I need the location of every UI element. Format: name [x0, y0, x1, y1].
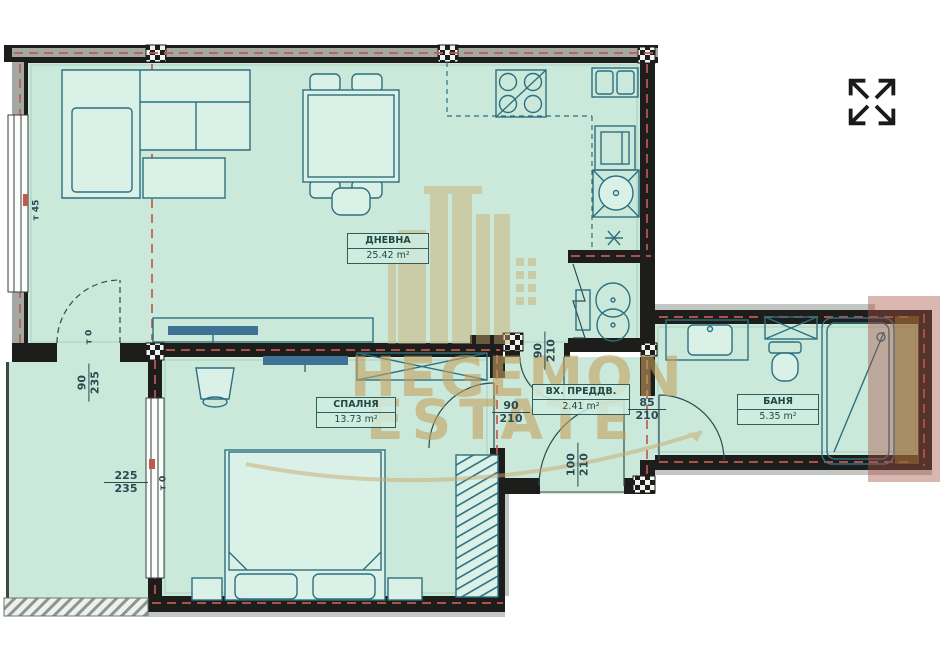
dim-living-hall-door: 90 210 — [532, 332, 557, 370]
dim-terrace-door: 90 235 — [76, 364, 101, 402]
nightstand — [192, 578, 222, 600]
party-wall-strip — [895, 316, 919, 464]
pillow — [313, 574, 375, 599]
room-area: 2.41 m² — [533, 400, 629, 414]
room-label-hall: ВХ. ПРЕДДВ. 2.41 m² — [532, 384, 630, 415]
coffee-table — [143, 158, 225, 198]
height-label-terrace-door: т 0 — [84, 330, 94, 345]
pillow — [235, 574, 297, 599]
nightstand — [388, 578, 422, 600]
dim-balcony-slider: 225 235 — [104, 470, 148, 495]
living-window — [8, 115, 28, 292]
dim-bathroom-door: 85 210 — [628, 397, 666, 422]
room-label-living: ДНЕВНА 25.42 m² — [347, 233, 429, 264]
height-label-slider: т 0 — [158, 476, 168, 491]
floorplan-drawing — [0, 0, 942, 657]
room-label-bedroom: СПАЛНЯ 13.73 m² — [316, 397, 396, 428]
floorplan-canvas: HEGEMON ESTATE ДНЕВНА 25.42 m² СПАЛНЯ 13… — [0, 0, 942, 657]
room-area: 25.42 m² — [348, 249, 428, 263]
room-area: 13.73 m² — [317, 413, 395, 427]
chair — [332, 188, 370, 215]
room-label-bath: БАНЯ 5.35 m² — [737, 394, 819, 425]
room-name: СПАЛНЯ — [317, 398, 395, 413]
dim-entrance-door: 100 210 — [565, 443, 590, 487]
room-name: БАНЯ — [738, 395, 818, 410]
dim-bedroom-door: 90 210 — [492, 400, 530, 425]
room-name: ДНЕВНА — [348, 234, 428, 249]
washing-machine-kitchen — [593, 170, 639, 217]
fullscreen-button[interactable] — [840, 70, 904, 134]
room-name: ВХ. ПРЕДДВ. — [533, 385, 629, 400]
height-label-window: т 45 — [31, 200, 41, 221]
room-area: 5.35 m² — [738, 410, 818, 424]
expand-arrows-icon — [840, 70, 904, 134]
